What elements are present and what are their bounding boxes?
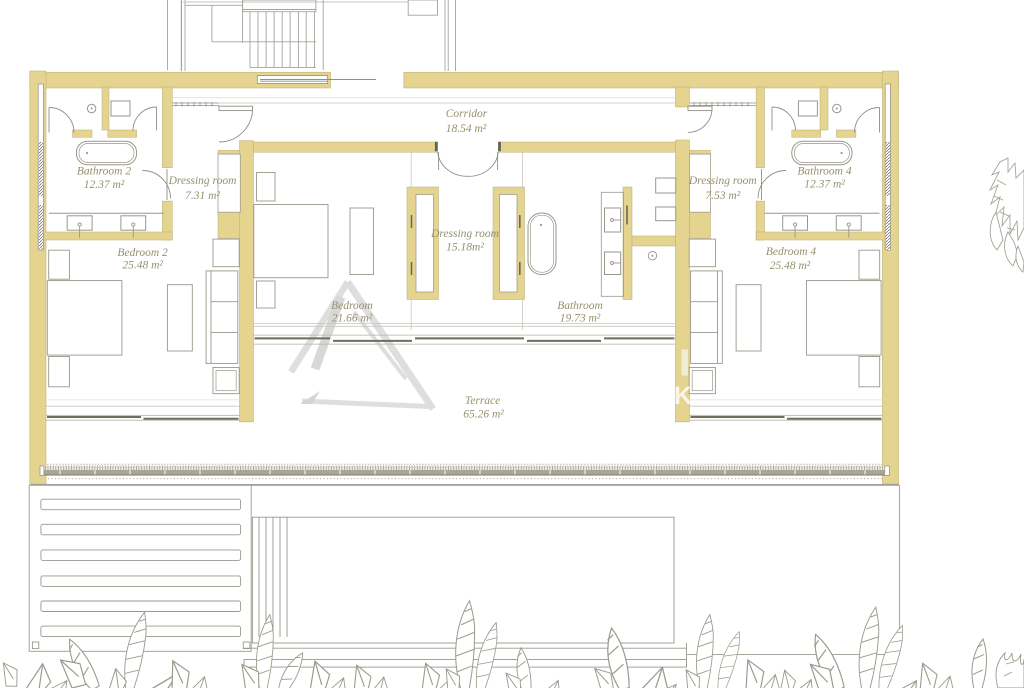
- svg-text:Bathroom 4: Bathroom 4: [797, 165, 851, 177]
- svg-text:Bathroom 2: Bathroom 2: [77, 166, 131, 178]
- svg-text:12.37 m²: 12.37 m²: [84, 179, 125, 191]
- svg-text:25.48 m²: 25.48 m²: [770, 260, 811, 272]
- svg-text:18.54 m²: 18.54 m²: [446, 123, 487, 135]
- svg-text:Bathroom: Bathroom: [557, 300, 603, 312]
- svg-text:Terrace: Terrace: [465, 395, 500, 407]
- svg-text:Corridor: Corridor: [446, 108, 488, 120]
- svg-text:25.48 m²: 25.48 m²: [122, 260, 163, 272]
- svg-text:Bedroom 2: Bedroom 2: [117, 247, 168, 259]
- svg-text:Bedroom: Bedroom: [331, 300, 373, 312]
- svg-text:15.18m²: 15.18m²: [446, 242, 484, 254]
- svg-text:Dressing room: Dressing room: [430, 228, 499, 240]
- svg-text:7.31 m²: 7.31 m²: [185, 190, 220, 202]
- svg-text:65.26 m²: 65.26 m²: [463, 409, 504, 421]
- svg-text:7.53 m²: 7.53 m²: [705, 190, 740, 202]
- svg-text:Dressing room: Dressing room: [688, 175, 757, 187]
- svg-text:12.37 m²: 12.37 m²: [804, 179, 845, 191]
- svg-text:Bedroom 4: Bedroom 4: [766, 246, 817, 258]
- svg-text:19.73 m²: 19.73 m²: [560, 313, 601, 325]
- svg-text:K: K: [674, 382, 692, 410]
- svg-text:Dressing room: Dressing room: [168, 175, 237, 187]
- svg-text:21.66 m²: 21.66 m²: [332, 313, 373, 325]
